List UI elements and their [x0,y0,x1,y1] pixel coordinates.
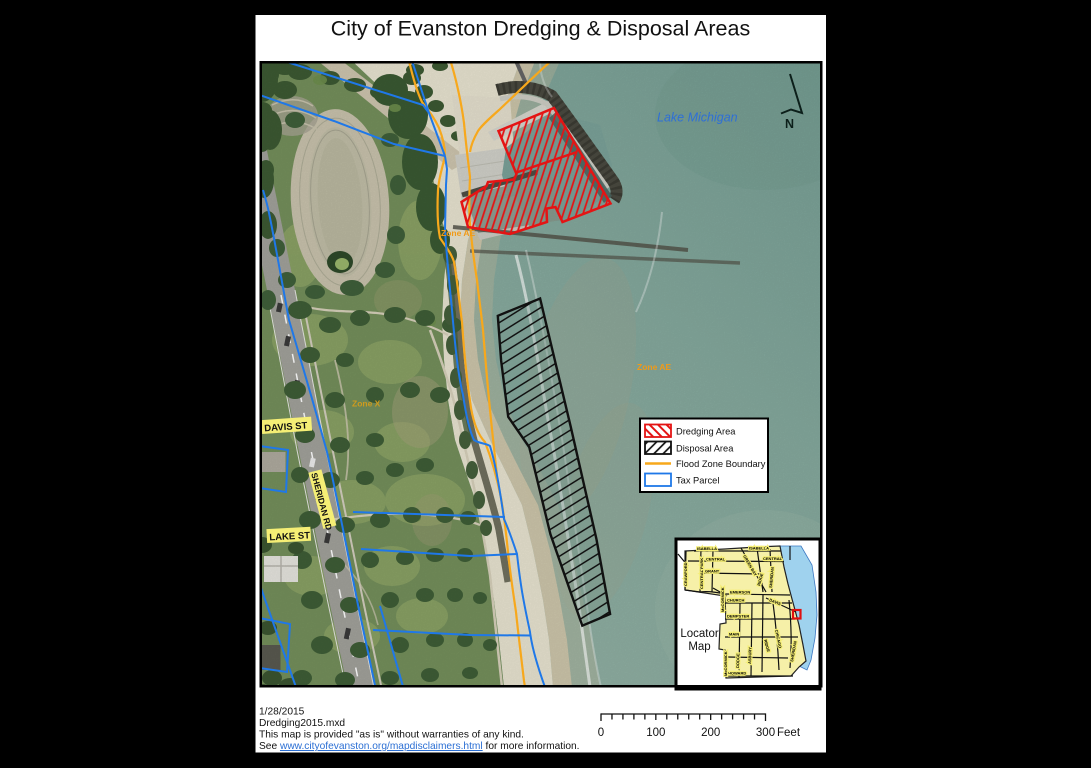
svg-text:Dredging2015.mxd: Dredging2015.mxd [259,718,345,729]
svg-text:300: 300 [756,727,775,739]
svg-text:HOWARD: HOWARD [728,671,746,676]
svg-text:DODGE: DODGE [735,653,741,668]
svg-text:N: N [785,117,794,131]
svg-text:Flood Zone Boundary: Flood Zone Boundary [676,459,766,469]
svg-text:GRANT: GRANT [705,569,720,574]
svg-text:MAIN: MAIN [729,632,739,637]
svg-text:Locator: Locator [680,628,719,640]
svg-text:1/28/2015: 1/28/2015 [259,707,305,718]
svg-text:McCORMICK: McCORMICK [723,651,728,676]
svg-text:Feet: Feet [777,727,801,739]
svg-text:CENTRAL PARK: CENTRAL PARK [699,558,704,589]
svg-text:Zone X: Zone X [352,399,381,409]
svg-text:ISABELLA: ISABELLA [749,546,769,551]
svg-text:McCORMICK: McCORMICK [720,587,725,612]
svg-text:ASBURY: ASBURY [747,647,753,664]
svg-text:LAKE ST: LAKE ST [269,530,310,543]
svg-text:Disposal Area: Disposal Area [676,444,734,454]
svg-text:100: 100 [646,727,665,739]
svg-text:ISABELLA: ISABELLA [697,546,717,551]
svg-text:200: 200 [701,727,720,739]
svg-text:Lake Michigan: Lake Michigan [657,111,738,125]
svg-text:0: 0 [598,727,604,739]
svg-text:Zone AE: Zone AE [441,228,475,238]
svg-text:Map: Map [688,641,710,653]
svg-text:Dredging Area: Dredging Area [676,427,736,437]
svg-text:CRAWFORD: CRAWFORD [683,562,688,586]
svg-text:EMERSON: EMERSON [730,590,750,595]
svg-text:Zone AE: Zone AE [637,362,671,372]
svg-text:City of Evanston Dredging & Di: City of Evanston Dredging & Disposal Are… [331,17,750,41]
svg-text:See www.cityofevanston.org/map: See www.cityofevanston.org/mapdisclaimer… [259,741,580,752]
svg-text:This map is provided "as is" w: This map is provided "as is" without war… [259,730,524,741]
svg-text:Tax Parcel: Tax Parcel [676,476,719,486]
svg-text:CENTRAL: CENTRAL [763,556,783,561]
svg-text:CHURCH: CHURCH [727,598,744,603]
svg-text:DEMPSTER: DEMPSTER [727,614,749,619]
svg-text:CENTRAL: CENTRAL [706,557,726,562]
